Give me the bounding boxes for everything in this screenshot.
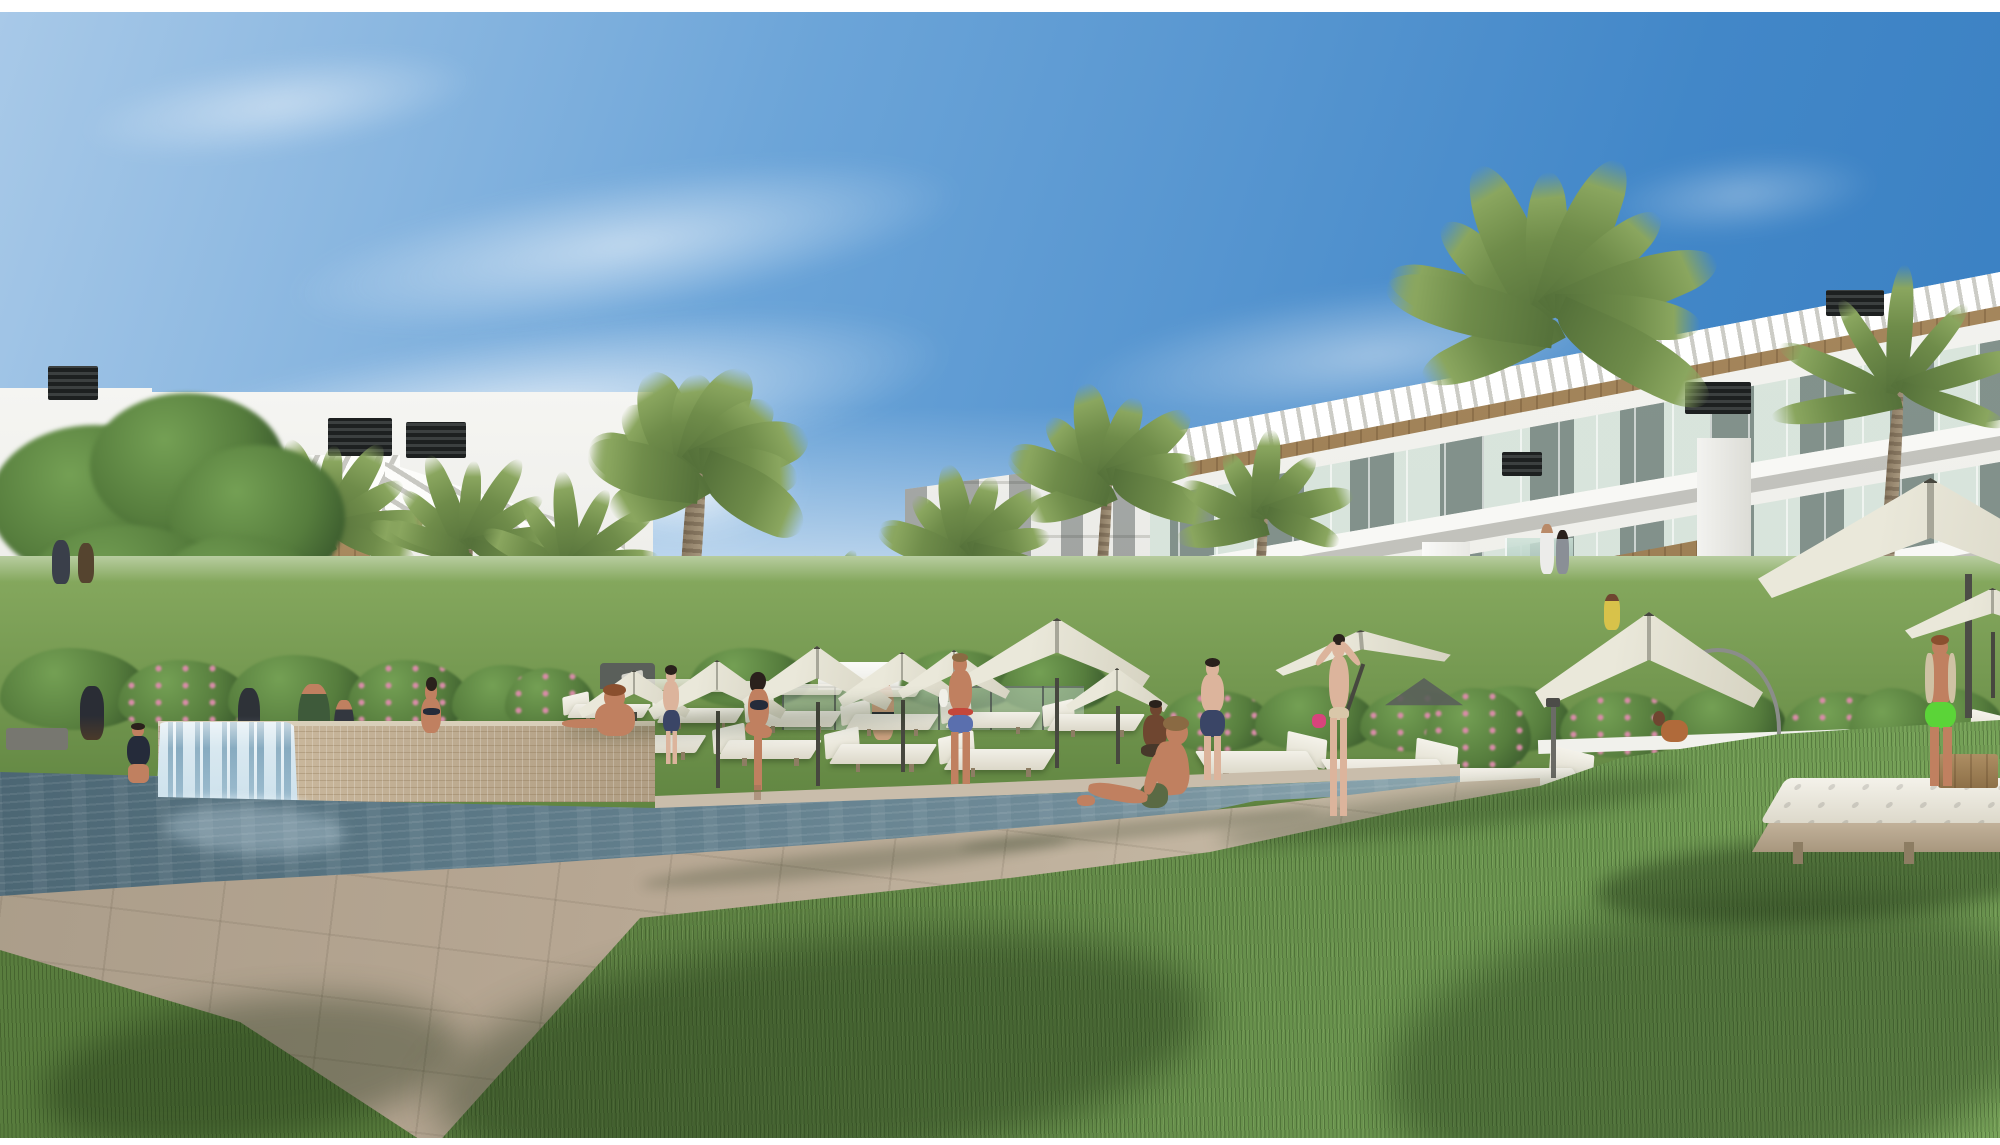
balcony-figure (1556, 530, 1569, 574)
swim-shorts (1200, 710, 1225, 736)
frame-border-bottom (0, 1138, 2000, 1145)
palm-frond (1897, 381, 2000, 432)
person-leaning-man (560, 684, 656, 738)
person-torso (1661, 720, 1689, 742)
person-standing-woman-wall-end (654, 668, 690, 764)
person-hair (603, 684, 626, 696)
person-legs-extended (1087, 780, 1149, 806)
palm-tree-tall-right (1390, 168, 1720, 588)
person-man-navy-shorts (1190, 660, 1236, 780)
person-man-green-shorts (1912, 638, 1972, 786)
pink-bag (1312, 714, 1326, 728)
person-torso (1329, 656, 1350, 711)
person-legs (1204, 736, 1221, 780)
person-pool-edge-woman (736, 672, 788, 800)
parasol-canopy (1758, 478, 2000, 598)
parasol-pole (1991, 632, 1995, 698)
person-spa-woman-back (414, 680, 450, 734)
person-torso (949, 670, 972, 711)
garden-bench (6, 728, 68, 750)
patio-figure (80, 686, 104, 740)
waterfall (156, 722, 298, 810)
person-calves-in-water (754, 733, 762, 789)
resort-pool-render (0, 0, 2000, 1145)
person-feet (1077, 795, 1095, 806)
person-hair-bun (426, 677, 437, 691)
daybed-leg (1793, 842, 1803, 864)
balcony-figure (1540, 524, 1554, 574)
parasol-pole (1055, 678, 1059, 768)
balcony-figure (78, 543, 94, 583)
person-sitting-man-camo (1072, 716, 1202, 820)
swim-shorts (948, 715, 973, 733)
daybed (1758, 778, 2000, 864)
towel-in-hand (939, 689, 948, 707)
person-legs (128, 764, 149, 783)
garden-lamp-post (1551, 704, 1556, 778)
person-reflection (754, 785, 761, 800)
person-legs (1330, 718, 1347, 816)
person-torso (663, 681, 679, 712)
lounger-leg (1026, 768, 1031, 777)
swimsuit-strap (423, 708, 440, 714)
person-legs (1930, 727, 1952, 786)
person-torso (1201, 674, 1224, 712)
frame-border-top (0, 0, 2000, 12)
person-arms-on-wall (562, 719, 612, 729)
person-hair (665, 665, 677, 675)
person-skirt (663, 710, 680, 733)
person-legs (951, 732, 970, 784)
person-hair (1163, 716, 1189, 731)
person-hair (1149, 700, 1163, 708)
person-legs (666, 731, 678, 764)
balcony-figure (52, 540, 70, 584)
towel-strap (1948, 653, 1956, 703)
person-torso (421, 698, 441, 733)
daybed-leg (1904, 842, 1914, 864)
swim-shorts (1925, 702, 1956, 729)
towel-strap (1925, 653, 1933, 703)
garden-lamp-head (1546, 698, 1560, 707)
parasol-canopy (1905, 588, 2000, 639)
person-man-blue-shorts (936, 656, 986, 784)
person-torso (127, 736, 150, 767)
person-crouching-woman (118, 724, 162, 788)
swimsuit-top (750, 700, 769, 710)
person-on-lounger (1648, 706, 1694, 756)
